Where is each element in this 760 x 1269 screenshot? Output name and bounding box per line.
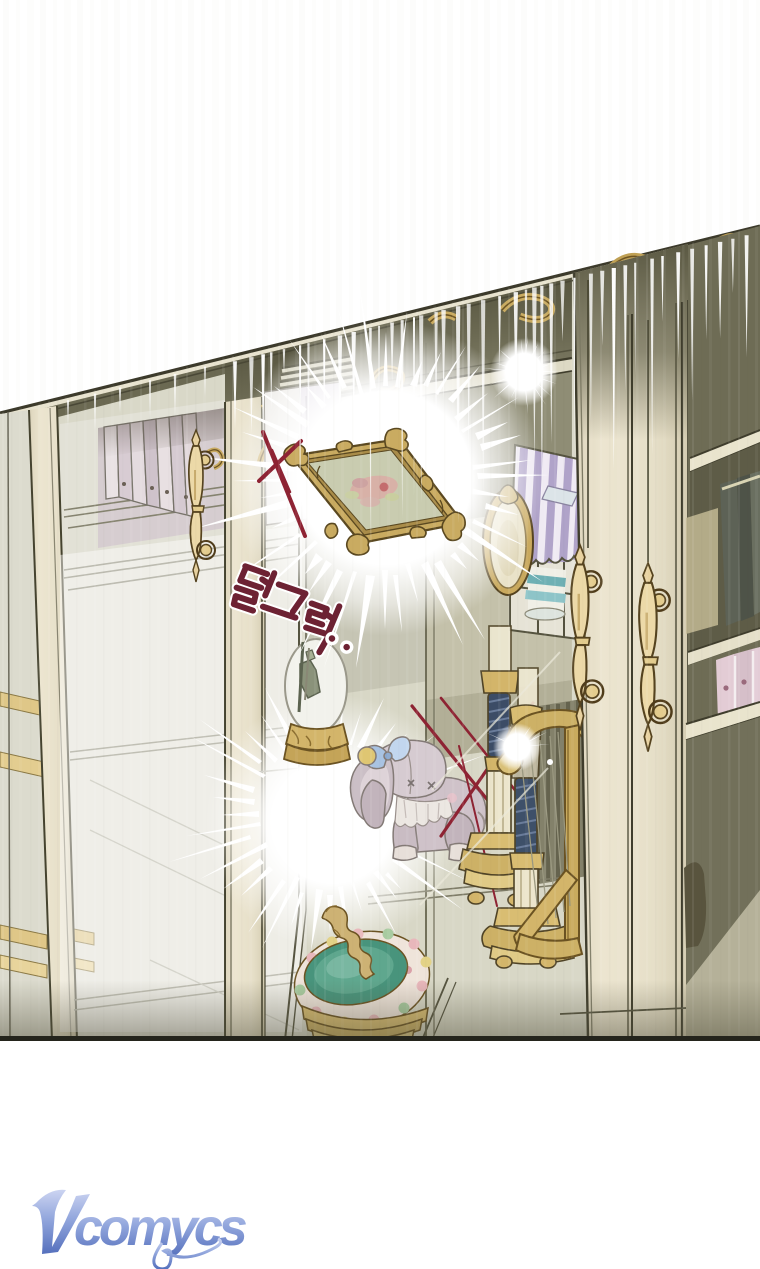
svg-text:comycs: comycs: [74, 1199, 247, 1257]
